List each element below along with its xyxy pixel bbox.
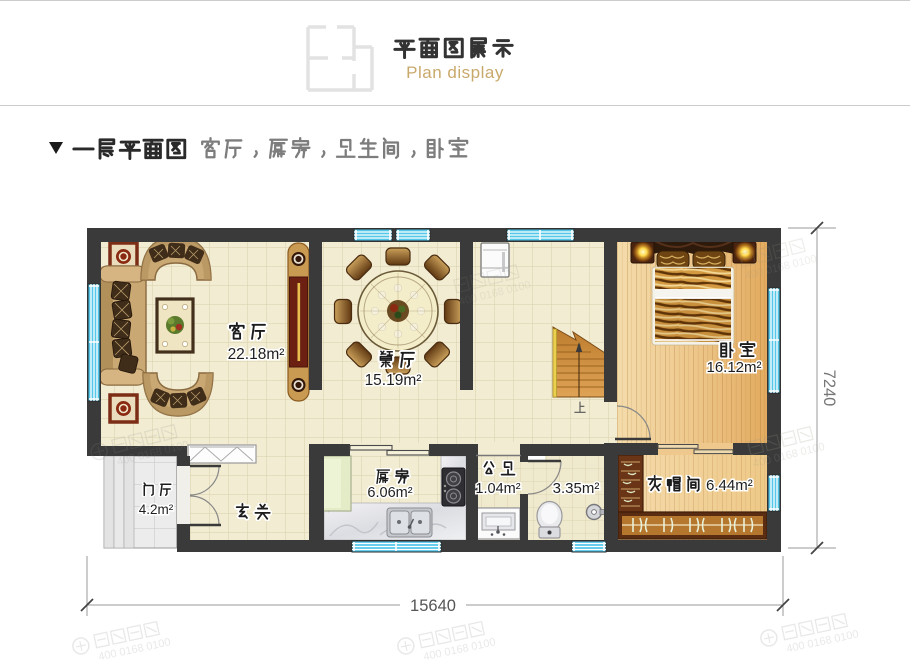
svg-text:22.18m²: 22.18m²	[228, 346, 285, 363]
svg-text:15640: 15640	[410, 597, 456, 615]
svg-text:3.35m²: 3.35m²	[553, 480, 600, 497]
svg-text:6.06m²: 6.06m²	[367, 485, 412, 501]
svg-text:7240: 7240	[820, 370, 838, 407]
svg-text:16.12m²: 16.12m²	[706, 359, 761, 376]
svg-text:1.04m²: 1.04m²	[475, 481, 520, 497]
svg-text:15.19m²: 15.19m²	[365, 372, 422, 389]
svg-text:6.44m²: 6.44m²	[706, 477, 753, 494]
svg-text:4.2m²: 4.2m²	[139, 502, 174, 517]
